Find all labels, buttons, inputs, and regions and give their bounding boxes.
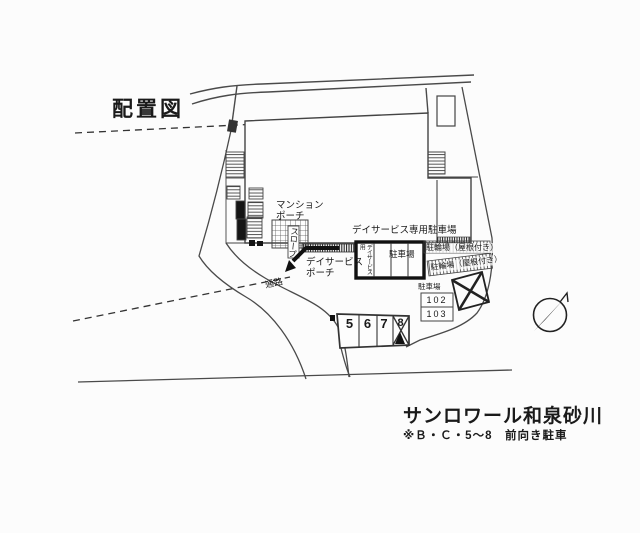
dayservice-stall-vertical-label: デイサービス用 <box>357 244 371 278</box>
bicycle-parking-label-1: 駐輪場（屋根付き） <box>426 243 498 253</box>
unit-stall-102: 102 <box>421 295 453 306</box>
east-stairs-hatch <box>428 152 445 174</box>
unit-stall-103: 103 <box>421 309 453 320</box>
building-name: サンロワール和泉砂川 <box>403 406 603 429</box>
boundary-corner-marker <box>227 119 238 132</box>
stall-number-8: 8 <box>392 317 409 330</box>
crossed-box <box>452 272 489 310</box>
stall-number-5: 5 <box>340 316 359 332</box>
dayservice-porch-label: デイサービス ポーチ <box>306 257 363 280</box>
building-outline <box>227 96 478 243</box>
mansion-porch-label: マンション ポーチ <box>276 200 324 223</box>
dayservice-parking-title: デイサービス専用駐車場 <box>352 225 457 236</box>
page-title: 配置図 <box>112 97 184 122</box>
top-road <box>190 75 474 123</box>
stall-number-7: 7 <box>375 316 393 332</box>
parking-lot-label: 駐車場 <box>418 282 441 291</box>
north-arrow-icon <box>534 293 569 332</box>
outbuilding-rect <box>437 96 455 126</box>
parking-note: ※Ｂ・Ｃ・5～8 前向き駐車 <box>403 430 567 444</box>
site-plan-page: 配置図 マンション ポーチ スロープ デイサービス ポーチ デイサービス専用駐車… <box>0 0 640 533</box>
dayservice-stall-parking-label: 駐車場 <box>389 249 415 259</box>
